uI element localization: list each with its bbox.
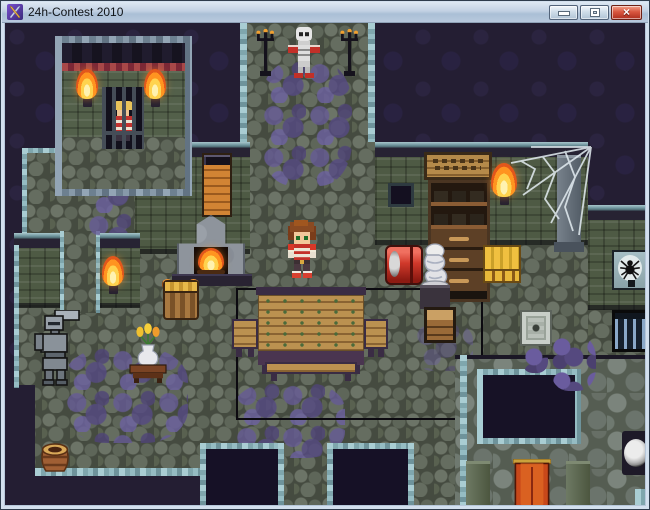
game-viewport[interactable] <box>5 23 645 505</box>
purple-stones <box>260 61 352 186</box>
pillar <box>466 461 490 505</box>
flower-vase-table <box>128 323 168 383</box>
trim <box>200 443 284 449</box>
pillar-base <box>554 242 584 252</box>
gold-crate <box>483 245 521 283</box>
bench-leg <box>345 372 351 381</box>
close-icon: × <box>612 6 641 19</box>
statue-pedestal <box>420 285 450 309</box>
skeleton-statue <box>282 25 326 79</box>
table-top <box>258 295 364 351</box>
void-edge <box>35 476 202 505</box>
bench-leg <box>378 347 384 357</box>
flame-icon <box>102 256 124 286</box>
barrel-band <box>410 247 413 283</box>
wall-torch <box>144 69 166 107</box>
close-button[interactable]: × <box>611 5 642 20</box>
bench <box>265 362 357 374</box>
app-window: 24h-Contest 2010 × <box>0 0 650 510</box>
bench-leg <box>271 372 277 381</box>
floor-pit <box>327 443 414 505</box>
shelf-item <box>452 191 466 202</box>
tile-pattern <box>526 316 546 340</box>
crate-slat <box>427 326 453 328</box>
wooden-crate <box>424 307 456 343</box>
sign-marks <box>435 166 481 170</box>
trim <box>240 23 247 142</box>
trim <box>278 443 284 505</box>
floor-pit <box>200 443 284 505</box>
trim <box>60 231 64 313</box>
grate-lip <box>615 313 645 319</box>
bench-leg <box>368 347 374 357</box>
hero <box>284 220 320 278</box>
title-bar[interactable]: 24h-Contest 2010 × <box>2 2 648 23</box>
table-edge <box>256 287 366 295</box>
shelf-item <box>470 191 484 202</box>
trim <box>408 443 414 505</box>
shelf-row-items <box>431 183 487 206</box>
spider-icon <box>619 255 641 281</box>
shelf-item <box>434 214 448 225</box>
spider-emblem-shield <box>612 250 645 290</box>
storage-basket <box>163 280 199 320</box>
sign-marks <box>433 159 483 163</box>
fire-icon <box>198 248 224 272</box>
app-icon[interactable] <box>7 4 23 20</box>
window-title: 24h-Contest 2010 <box>28 2 123 23</box>
gold-crate-base <box>485 269 519 281</box>
trim <box>327 443 333 505</box>
trim <box>200 443 206 505</box>
table-top-flecks <box>258 295 364 351</box>
jail-bars <box>102 87 144 149</box>
minimize-button[interactable] <box>549 5 578 20</box>
crate-slat <box>427 334 453 336</box>
dining-table <box>256 287 366 369</box>
jail-cell-room <box>55 36 192 196</box>
bench <box>364 319 388 349</box>
maximize-button[interactable] <box>580 5 609 20</box>
bench-leg <box>236 347 242 357</box>
trim <box>635 489 645 505</box>
void-edge <box>5 385 35 505</box>
jail-bar-rail <box>102 131 144 135</box>
flame-icon <box>76 69 98 99</box>
fireplace-hearth <box>194 247 228 275</box>
jail-cell <box>102 87 144 149</box>
crossed-swords-icon <box>7 4 23 20</box>
basket-grain <box>165 282 197 293</box>
chimney-cap <box>204 155 230 165</box>
mummy-statue <box>415 243 455 289</box>
trim <box>368 23 375 142</box>
wall-window <box>388 183 414 207</box>
wall-torch <box>76 69 98 107</box>
jail-corridor-floor <box>60 231 100 313</box>
emblem-base <box>628 280 635 287</box>
rubble <box>550 335 596 391</box>
maximize-icon <box>591 9 599 16</box>
barrel-cap <box>389 251 400 277</box>
shield-boss <box>624 439 645 467</box>
spider-web <box>503 143 595 239</box>
floor-grate <box>612 310 645 352</box>
jail-room-interior <box>62 43 185 189</box>
shelf-item <box>434 191 448 202</box>
trim <box>327 443 414 449</box>
armor-statue <box>33 310 85 386</box>
shelf-row-items <box>431 206 487 229</box>
bench <box>232 319 258 349</box>
shelf-item <box>470 214 484 225</box>
chimney <box>202 153 232 217</box>
pillar <box>566 461 590 505</box>
flame-icon <box>144 69 166 99</box>
clay-pot <box>38 442 72 476</box>
wall-banner <box>513 459 551 505</box>
bench-top <box>366 321 386 347</box>
bench-leg <box>248 347 254 357</box>
jail-wall-top <box>62 43 185 63</box>
wall-torch <box>102 256 124 294</box>
round-shield <box>622 431 645 475</box>
left-wall-a <box>14 233 60 308</box>
shelf-sign <box>424 152 492 180</box>
candelabra <box>254 29 276 77</box>
bench-top <box>267 364 355 372</box>
rubble <box>522 345 548 373</box>
trim <box>22 148 27 238</box>
candelabra <box>338 29 360 77</box>
minimize-icon <box>559 12 569 15</box>
stone-structure <box>455 355 645 505</box>
shelf-item <box>452 214 466 225</box>
decorative-floor-tile <box>520 310 552 346</box>
drawer-handle <box>449 237 469 241</box>
floor-left-trim <box>14 245 19 388</box>
bench-top <box>234 321 256 347</box>
crate-top <box>427 310 453 320</box>
